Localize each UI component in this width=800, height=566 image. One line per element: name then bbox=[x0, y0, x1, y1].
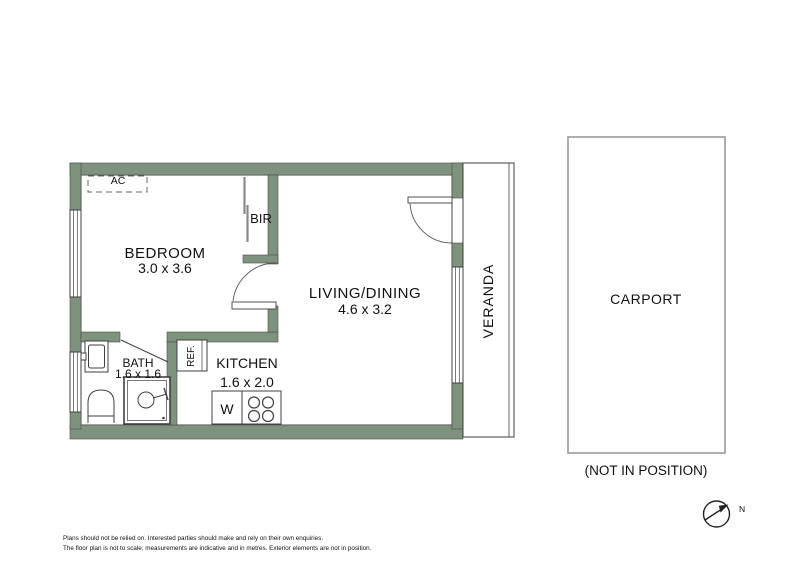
window-living bbox=[452, 267, 463, 383]
toilet-icon bbox=[88, 390, 114, 423]
kitchen-dims: 1.6 x 2.0 bbox=[220, 374, 274, 390]
window-bath bbox=[70, 352, 81, 412]
wall-left-3 bbox=[70, 412, 81, 429]
vanity-icon bbox=[81, 341, 108, 372]
bedroom-dims: 3.0 x 3.6 bbox=[138, 260, 192, 276]
carport-note: (NOT IN POSITION) bbox=[585, 463, 708, 478]
north-arrow-icon bbox=[704, 501, 730, 527]
disclaimer-line-2: The floor plan is not to scale; measurem… bbox=[63, 545, 372, 552]
bath-dims: 1.6 x 1.6 bbox=[115, 367, 161, 381]
stove-icon bbox=[242, 391, 281, 424]
floor-plan-drawing: BEDROOM 3.0 x 3.6 LIVING/DINING 4.6 x 3.… bbox=[0, 0, 800, 566]
north-label: N bbox=[739, 504, 745, 514]
wall-right-1 bbox=[452, 163, 463, 198]
floor-plan-page: BEDROOM 3.0 x 3.6 LIVING/DINING 4.6 x 3.… bbox=[0, 0, 800, 566]
wall-right-2 bbox=[452, 243, 463, 267]
window-bedroom bbox=[70, 210, 81, 297]
disclaimer: Plans should not be relied on. Intereste… bbox=[63, 535, 372, 552]
veranda-label: VERANDA bbox=[480, 264, 496, 339]
kitchen-label: KITCHEN bbox=[216, 355, 277, 371]
carport-label: CARPORT bbox=[610, 291, 682, 307]
wall-bottom bbox=[70, 425, 463, 439]
living-label: LIVING/DINING bbox=[309, 285, 421, 302]
ac-label: AC bbox=[111, 175, 126, 187]
wall-top bbox=[70, 163, 463, 175]
wall-left-1 bbox=[70, 163, 81, 210]
wall-bedroom-living-2 bbox=[268, 306, 278, 332]
fridge-label: REF. bbox=[186, 345, 197, 367]
shower-icon bbox=[124, 377, 170, 424]
wall-bir-stub bbox=[243, 255, 278, 263]
living-dims: 4.6 x 3.2 bbox=[338, 301, 392, 317]
washer-label: W bbox=[220, 401, 234, 417]
wall-left-2 bbox=[70, 297, 81, 352]
bir-label: BIR bbox=[250, 211, 272, 226]
disclaimer-line-1: Plans should not be relied on. Intereste… bbox=[63, 535, 323, 542]
wall-right-3 bbox=[452, 383, 463, 429]
